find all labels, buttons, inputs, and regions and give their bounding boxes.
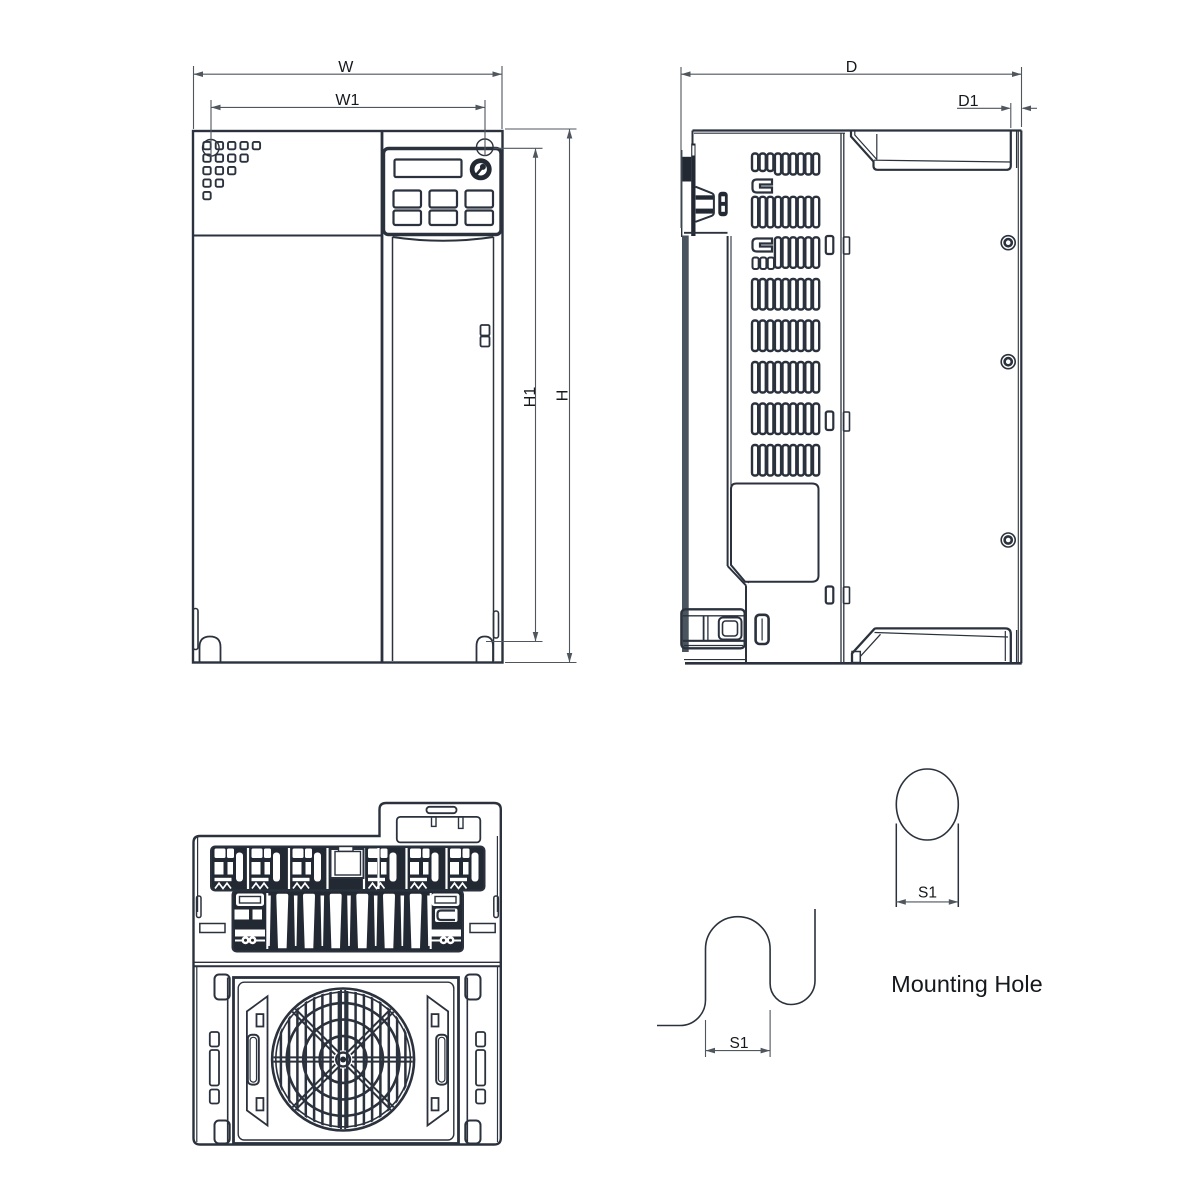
- svg-text:H1: H1: [522, 387, 539, 408]
- svg-text:D1: D1: [958, 93, 979, 110]
- svg-text:D: D: [846, 59, 858, 76]
- svg-text:H: H: [555, 390, 572, 402]
- svg-text:Mounting Hole: Mounting Hole: [891, 971, 1043, 997]
- svg-text:W: W: [338, 59, 354, 76]
- svg-text:S1: S1: [730, 1035, 749, 1052]
- svg-text:W1: W1: [335, 92, 359, 109]
- svg-text:S1: S1: [918, 885, 937, 902]
